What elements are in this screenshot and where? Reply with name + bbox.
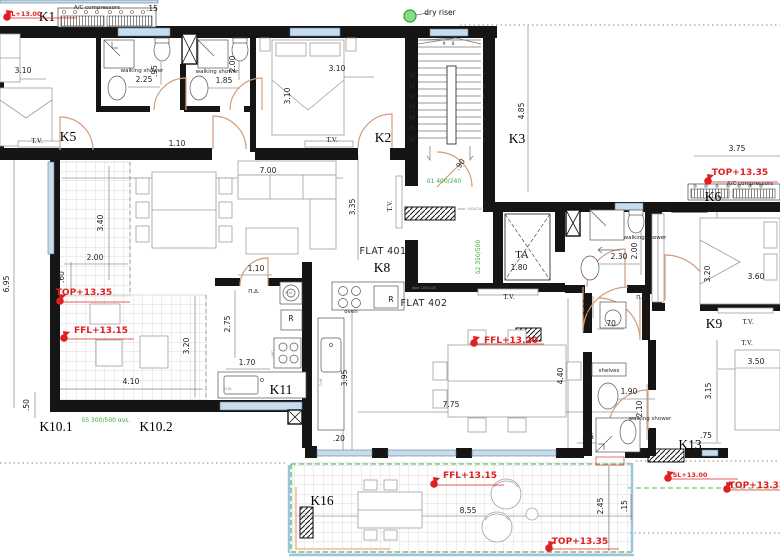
room-label-k10-2: K10.2	[139, 419, 172, 434]
dim: 1.10	[248, 264, 265, 273]
tv-label: T.V.	[742, 318, 754, 326]
room-label-k11: K11	[270, 382, 293, 397]
tv-label: T.V.	[386, 200, 394, 212]
dim: 3.50	[748, 357, 765, 366]
dim: 4.85	[517, 102, 526, 119]
dim: 3.10	[329, 64, 346, 73]
flat-402-label: FLAT 402	[401, 298, 448, 309]
door-size-note: door 100x220	[412, 286, 437, 290]
oven-under-bench-label: UBO	[271, 350, 275, 358]
stair-step-number: 1	[483, 138, 486, 144]
dim: 2.30	[611, 252, 628, 261]
room-label-k16: K16	[310, 493, 333, 508]
dim: .15	[146, 4, 158, 13]
dim: 2.00	[87, 253, 104, 262]
room-label-k3: K3	[509, 131, 526, 146]
dim: 3.35	[348, 198, 357, 215]
dim: 3.40	[96, 214, 105, 231]
tv-label: T.V.	[326, 136, 338, 144]
dim: 2.45	[596, 497, 605, 514]
dim: 1.80	[511, 263, 528, 272]
stair-step-number: 13	[409, 104, 415, 110]
dim: 2.75	[223, 315, 232, 332]
fridge-label: R	[388, 295, 393, 304]
beam-note: δ1 400/240	[427, 178, 462, 185]
walking-shower-label: walking shower	[121, 68, 164, 74]
dim: 4.10	[123, 377, 140, 386]
room-label-k9: K9	[706, 316, 723, 331]
flat-401-label: FLAT 401	[360, 246, 407, 257]
entry-label: Π.Δ.	[636, 295, 648, 301]
room-label-k5: K5	[60, 129, 77, 144]
dim: 3.20	[703, 265, 712, 282]
beam-note: δ5 300/500 ανε.	[82, 417, 131, 424]
dim: 4.40	[556, 367, 565, 384]
dim: 3.10	[283, 87, 292, 104]
tv-label: T.V.	[741, 339, 753, 347]
dim: 6.95	[2, 275, 11, 292]
room-label-k10-1: K10.1	[39, 419, 72, 434]
walking-shower-label: walking shower	[624, 235, 667, 241]
dry-riser-label: dry riser	[424, 8, 456, 17]
dim: .15	[620, 500, 629, 512]
dim: 1.10	[582, 298, 591, 315]
dishwasher-label: D.W.	[224, 387, 232, 391]
dim: 1.85	[216, 76, 233, 85]
dim: 1.90	[621, 387, 638, 396]
ac-compressors-label: A/C compressors	[74, 5, 120, 11]
level-top-northeast: TOP+13.35	[712, 168, 768, 178]
stair-step-number: 2	[483, 127, 486, 133]
tv-label: T.V.	[31, 137, 43, 145]
dim: 3.75	[729, 144, 746, 153]
stair-step-number: 5	[483, 94, 486, 100]
dim: 3.95	[340, 369, 349, 386]
dim: .60	[57, 271, 66, 283]
level-top-south: TOP+13.35	[552, 537, 608, 547]
stair-step-number: 16	[409, 137, 415, 143]
dim: 1.10	[169, 139, 186, 148]
stair-step-number: 14	[409, 115, 415, 121]
beam-note: δ2 350/500	[475, 240, 482, 275]
level-ffl-terrace: FFL+13.15	[443, 471, 497, 481]
stair-step-number: 3	[483, 116, 486, 122]
door-size-note: door 100x220	[458, 207, 483, 211]
stair-step-number: 6	[483, 84, 486, 90]
stair-step-number: 12	[409, 94, 415, 100]
elevator-label: ΤΑ	[515, 249, 529, 261]
stair-step-number: 7	[483, 73, 486, 79]
stair-step-number: 8	[452, 41, 455, 47]
dim: .70	[604, 319, 616, 328]
entry-label: Π.Δ.	[248, 289, 260, 295]
stair-step-number: 4	[483, 105, 486, 111]
walking-shower-label: walking shower	[629, 416, 672, 422]
dim: 7.75	[443, 400, 460, 409]
walking-shower-label: walking shower	[196, 69, 239, 75]
floor-plan-svg: K1K5K2K3K6K8K9K10.1K10.2K11K13K16FLAT 40…	[0, 0, 780, 559]
dishwasher-label: D.W.	[319, 378, 323, 386]
washing-machine-label: W.M.	[285, 291, 293, 295]
dim: 1.85	[495, 241, 504, 258]
dim: 7.00	[260, 166, 277, 175]
room-label-k6: K6	[705, 189, 722, 204]
dim: .50	[22, 399, 31, 411]
dim: .20	[333, 434, 345, 443]
stair-step-number: 10	[409, 73, 415, 79]
dim: 3.15	[704, 382, 713, 399]
level-ffl-west: FFL+13.15	[74, 326, 128, 336]
floor-plan-page: K1K5K2K3K6K8K9K10.1K10.2K11K13K16FLAT 40…	[0, 0, 780, 559]
tv-label: T.V.	[503, 293, 515, 301]
dim: 3.20	[182, 337, 191, 354]
oven-label: oven	[344, 309, 358, 315]
room-label-k2: K2	[375, 130, 392, 145]
staircase	[418, 38, 481, 160]
room-label-k13: K13	[678, 437, 701, 452]
dim: 2.10	[635, 400, 644, 417]
dim: .75	[700, 431, 712, 440]
room-label-k8: K8	[374, 260, 391, 275]
stair-step-number: 11	[409, 84, 415, 90]
dim: 8.55	[460, 506, 477, 515]
shelves-label: shelves	[599, 368, 620, 374]
dim: 1.70	[239, 358, 256, 367]
dim: 2.00	[630, 242, 639, 259]
stair-step-number: 15	[409, 126, 415, 132]
dim: 3.10	[15, 66, 32, 75]
dim: 3.60	[748, 272, 765, 281]
stair-step-number: 9	[443, 41, 446, 47]
level-sl-southeast: SL+13.00	[673, 471, 708, 479]
dim: .35	[582, 432, 594, 441]
level-ffl-flat402: FFL+13.20	[484, 336, 538, 346]
level-top-east-edge: TOP+13.35	[729, 481, 780, 491]
fridge-label: R	[288, 314, 293, 323]
